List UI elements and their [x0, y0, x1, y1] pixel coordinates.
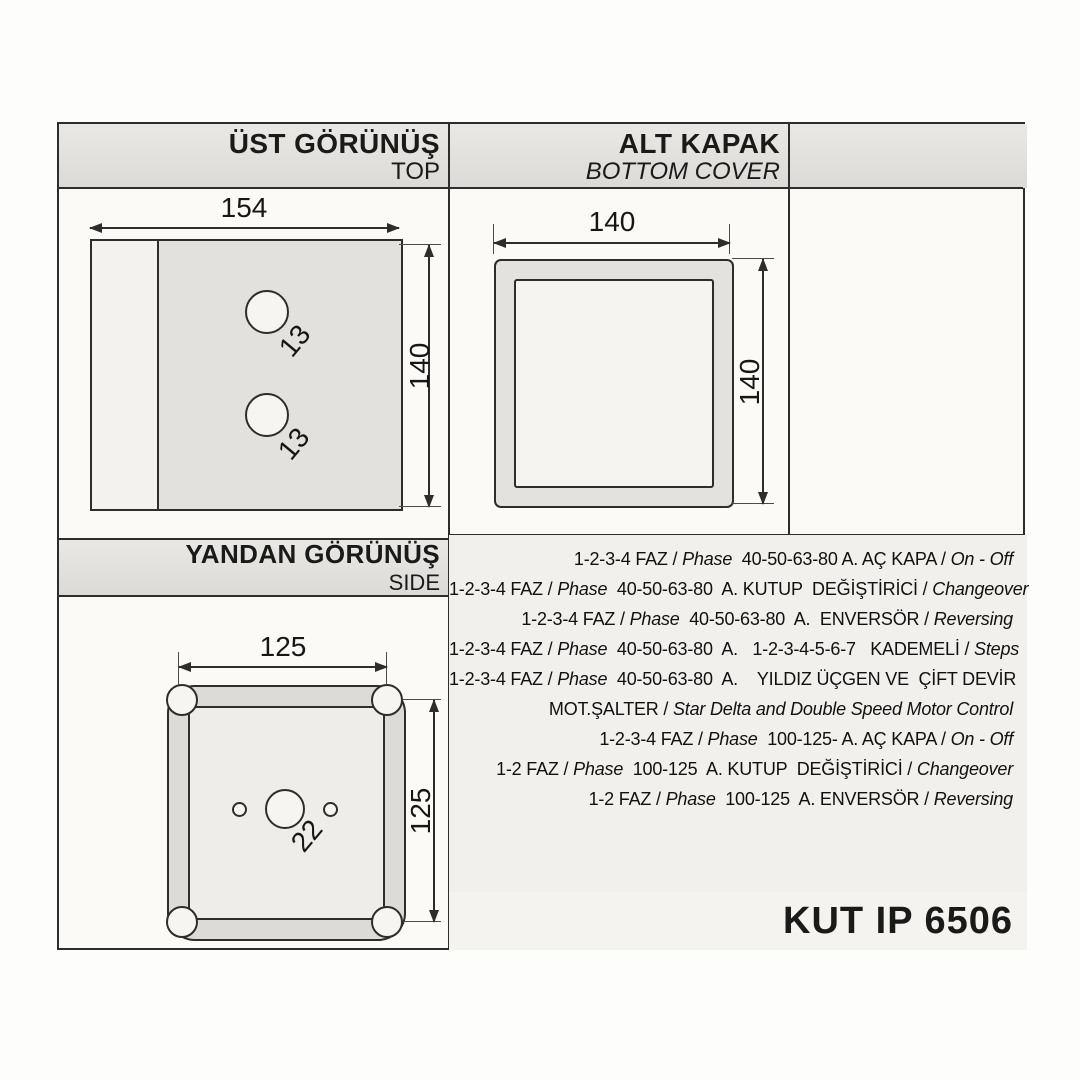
- header-bottom-cover: ALT KAPAK BOTTOM COVER: [449, 124, 789, 188]
- spec-segment: Star Delta and Double Speed Motor Contro…: [673, 699, 1013, 719]
- spec-segment: Phase: [630, 609, 680, 629]
- spec-list: 1-2-3-4 FAZ / Phase 40-50-63-80 A. AÇ KA…: [449, 535, 1027, 892]
- spec-segment: 1-2-3-4 FAZ /: [449, 669, 557, 689]
- spec-segment: 40-50-63-80 A. YILDIZ ÜÇGEN VE ÇİFT DEVİ…: [607, 669, 1016, 689]
- spec-line: 1-2-3-4 FAZ / Phase 40-50-63-80 A. YILDI…: [449, 664, 1013, 694]
- spec-segment: Steps: [974, 639, 1019, 659]
- witness-line: [399, 244, 441, 245]
- spec-segment: 1-2 FAZ /: [589, 789, 666, 809]
- spec-line: 1-2 FAZ / Phase 100-125 A. ENVERSÖR / Re…: [449, 784, 1013, 814]
- spec-line: 1-2-3-4 FAZ / Phase 40-50-63-80 A. 1-2-3…: [449, 634, 1013, 664]
- top-view-drawing: [90, 239, 403, 511]
- spec-line: 1-2-3-4 FAZ / Phase 40-50-63-80 A. KUTUP…: [449, 574, 1013, 604]
- spec-segment: Reversing: [934, 609, 1013, 629]
- dim-label-top-view-width: 154: [194, 192, 294, 224]
- spec-segment: 100-125 A. ENVERSÖR /: [716, 789, 934, 809]
- spec-line: 1-2-3-4 FAZ / Phase 40-50-63-80 A. ENVER…: [449, 604, 1013, 634]
- spec-segment: On - Off: [951, 549, 1013, 569]
- spec-segment: Changeover: [917, 759, 1013, 779]
- header-empty-cell: [789, 124, 1027, 188]
- spec-segment: Changeover: [932, 579, 1028, 599]
- spec-segment: Phase: [682, 549, 732, 569]
- side-header-bottom-rule: [59, 595, 449, 597]
- side-header-top-rule: [59, 538, 449, 540]
- dim-label-side-view-width: 125: [233, 631, 333, 663]
- top-view-subtitle: TOP: [391, 159, 440, 185]
- spec-segment: 40-50-63-80 A. AÇ KAPA /: [732, 549, 950, 569]
- spec-segment: 1-2-3-4 FAZ /: [449, 639, 557, 659]
- spec-segment: 1-2 FAZ /: [496, 759, 573, 779]
- side-view-corner-tube: [166, 906, 198, 938]
- spec-segment: MOT.ŞALTER /: [549, 699, 673, 719]
- spec-line: MOT.ŞALTER / Star Delta and Double Speed…: [449, 694, 1013, 724]
- header-top-view: ÜST GÖRÜNÜŞ TOP: [59, 124, 449, 188]
- right-sub-divider: [788, 124, 790, 535]
- spec-segment: 1-2-3-4 FAZ /: [574, 549, 682, 569]
- spec-segment: Phase: [557, 639, 607, 659]
- spec-segment: Phase: [708, 729, 758, 749]
- drawing-frame: ÜST GÖRÜNÜŞ TOP ALT KAPAK BOTTOM COVER Y…: [57, 122, 1025, 950]
- dim-label-bottom-cover-height: 140: [734, 347, 766, 417]
- spec-segment: On - Off: [951, 729, 1013, 749]
- spec-line: 1-2-3-4 FAZ / Phase 40-50-63-80 A. AÇ KA…: [449, 544, 1013, 574]
- dim-label-side-view-height: 125: [405, 776, 437, 846]
- side-view-corner-tube: [166, 684, 198, 716]
- spec-segment: 40-50-63-80 A. 1-2-3-4-5-6-7 KADEMELİ /: [607, 639, 974, 659]
- header-side-view: YANDAN GÖRÜNÜŞ SIDE: [59, 539, 449, 596]
- top-view-title: ÜST GÖRÜNÜŞ: [229, 128, 440, 159]
- side-view-corner-tube: [371, 906, 403, 938]
- spec-segment: Phase: [666, 789, 716, 809]
- side-view-width-dim-line: [179, 666, 387, 668]
- spec-segment: 1-2-3-4 FAZ /: [599, 729, 707, 749]
- side-view-subtitle: SIDE: [389, 570, 440, 596]
- spec-segment: 1-2-3-4 FAZ /: [521, 609, 629, 629]
- product-code: KUT IP 6506: [449, 892, 1027, 950]
- side-view-small-hole-left: [232, 802, 247, 817]
- side-view-corner-tube: [371, 684, 403, 716]
- witness-line: [399, 506, 441, 507]
- scanned-datasheet: ÜST GÖRÜNÜŞ TOP ALT KAPAK BOTTOM COVER Y…: [0, 0, 1080, 1080]
- spec-segment: Phase: [573, 759, 623, 779]
- bottom-cover-inner: [514, 279, 714, 488]
- top-view-hole-upper: [245, 290, 289, 334]
- bottom-cover-width-dim-line: [494, 242, 730, 244]
- side-view-title: YANDAN GÖRÜNÜŞ: [185, 539, 440, 570]
- spec-segment: 100-125- A. AÇ KAPA /: [758, 729, 951, 749]
- top-view-width-dim-line: [90, 227, 399, 229]
- dim-label-top-view-height: 140: [404, 331, 436, 401]
- top-view-hole-lower: [245, 393, 289, 437]
- spec-segment: 40-50-63-80 A. ENVERSÖR /: [680, 609, 934, 629]
- spec-segment: Reversing: [934, 789, 1013, 809]
- spec-segment: 100-125 A. KUTUP DEĞİŞTİRİCİ /: [623, 759, 917, 779]
- spec-line: 1-2 FAZ / Phase 100-125 A. KUTUP DEĞİŞTİ…: [449, 754, 1013, 784]
- spec-line: 1-2-3-4 FAZ / Phase 100-125- A. AÇ KAPA …: [449, 724, 1013, 754]
- spec-segment: 1-2-3-4 FAZ /: [449, 579, 557, 599]
- header-rule: [59, 187, 1023, 189]
- spec-segment: Phase: [557, 669, 607, 689]
- top-view-flange-strip: [92, 241, 159, 509]
- spec-segment: 40-50-63-80 A. KUTUP DEĞİŞTİRİCİ /: [607, 579, 932, 599]
- side-view-small-hole-right: [323, 802, 338, 817]
- dim-label-bottom-cover-width: 140: [562, 206, 662, 238]
- bottom-cover-title: ALT KAPAK: [619, 128, 780, 159]
- bottom-cover-subtitle: BOTTOM COVER: [586, 159, 780, 185]
- spec-segment: Phase: [557, 579, 607, 599]
